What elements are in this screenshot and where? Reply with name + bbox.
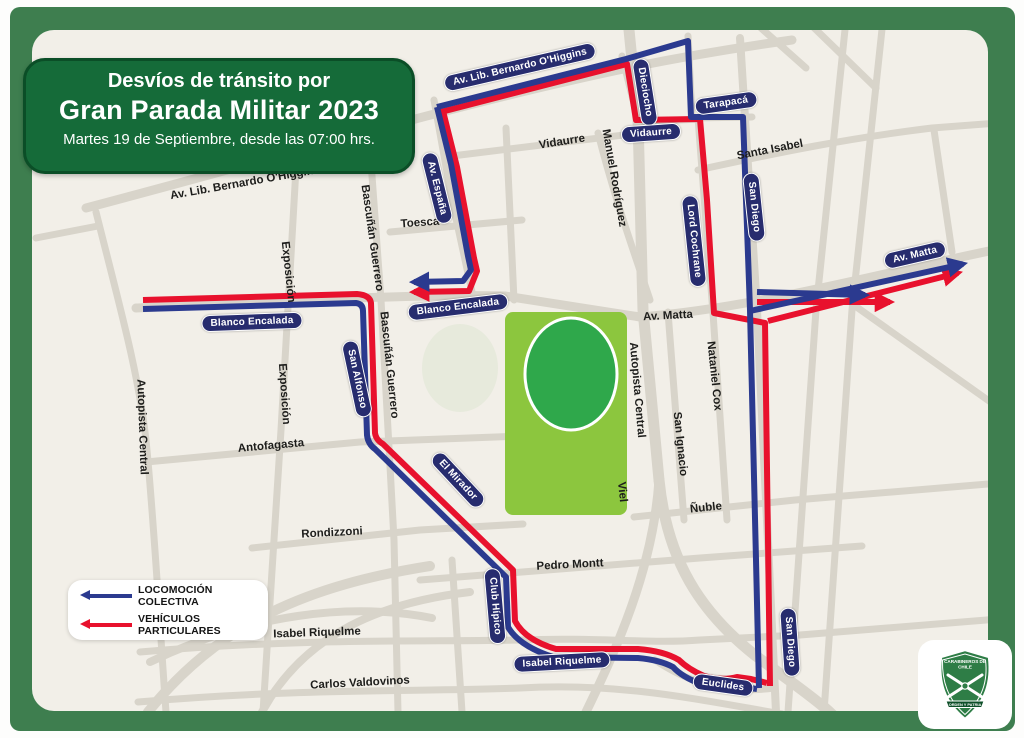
street-name-viel: Viel	[615, 481, 629, 502]
legend-item-locomocion: LOCOMOCIÓN COLECTIVA	[80, 584, 268, 608]
infographic-page: Av. Lib. Bernardo O'HigginsExposiciónBas…	[0, 0, 1024, 738]
street-name-autopista-central: Autopista Central	[134, 379, 149, 475]
street-name-bascunan-guerrero: Bascuñán Guerrero	[377, 311, 400, 419]
street-pill-dieciocho: Dieciocho	[631, 57, 658, 126]
red-left-arrow-icon	[80, 620, 132, 629]
street-name-santa-isabel: Santa Isabel	[736, 138, 804, 163]
street-name-san-ignacio: San Ignacio	[671, 411, 690, 476]
street-pill-isabel-riquelme: Isabel Riquelme	[513, 651, 611, 673]
street-pill-club-hipico: Club Hípico	[483, 568, 507, 645]
street-name-isabel-riquelme: Isabel Riquelme	[273, 625, 361, 640]
svg-text:CHILE: CHILE	[958, 664, 972, 669]
street-name-exposicion: Exposición	[276, 363, 292, 425]
street-pill-san-diego: San Diego	[742, 172, 766, 242]
street-name-toesca: Toesca	[400, 216, 440, 231]
carabineros-logo: CARABINEROS DE CHILE ORDEN Y PATRIA	[918, 640, 1012, 729]
street-pill-san-alfonso: San Alfonso	[341, 339, 374, 419]
street-name-vidaurre: Vidaurre	[538, 132, 586, 151]
svg-text:ORDEN Y PATRIA: ORDEN Y PATRIA	[949, 701, 982, 706]
street-pill-el-mirador: El Mirador	[428, 449, 487, 511]
street-pill-blanco-encalada: Blanco Encalada	[407, 292, 509, 321]
svg-text:CARABINEROS DE: CARABINEROS DE	[944, 659, 986, 664]
street-name-antofagasta: Antofagasta	[237, 437, 304, 455]
legend: LOCOMOCIÓN COLECTIVA VEHÍCULOS PARTICULA…	[68, 580, 268, 640]
street-name-autopista-central: Autopista Central	[627, 342, 647, 439]
street-pill-blanco-encalada: Blanco Encalada	[201, 312, 303, 333]
title-line-3: Martes 19 de Septiembre, desde las 07:00…	[26, 131, 412, 148]
street-pill-euclides: Euclides	[692, 672, 755, 697]
street-name-pedro-montt: Pedro Montt	[536, 557, 604, 572]
street-pill-av-matta: Av. Matta	[882, 240, 947, 271]
street-name-av-matta: Av. Matta	[643, 309, 693, 324]
street-pill-tarapaca: Tarapacá	[694, 90, 759, 116]
street-name-nataniel-cox: Nataniel Cox	[704, 341, 723, 412]
shield-icon: CARABINEROS DE CHILE ORDEN Y PATRIA	[933, 648, 997, 722]
title-card: Desvíos de tránsito por Gran Parada Mili…	[23, 58, 415, 174]
street-pill-lord-cochrane: Lord Cochrane	[681, 195, 707, 288]
title-line-1: Desvíos de tránsito por	[26, 70, 412, 93]
street-name-bascunan-guerrero: Bascuñán Guerrero	[359, 184, 386, 292]
legend-item-particulares: VEHÍCULOS PARTICULARES	[80, 613, 268, 637]
street-name-rondizzoni: Rondizzoni	[301, 525, 363, 540]
blue-left-arrow-icon	[80, 591, 132, 600]
street-name-nuble: Ñuble	[689, 500, 722, 515]
street-name-carlos-valdovinos: Carlos Valdovinos	[310, 674, 410, 691]
legend-label: LOCOMOCIÓN COLECTIVA	[138, 584, 268, 608]
street-name-manuel-rodriguez: Manuel Rodríguez	[599, 128, 628, 228]
street-pill-vidaurre: Vidaurre	[620, 122, 681, 143]
title-line-2: Gran Parada Militar 2023	[26, 95, 412, 126]
street-pill-av-lib-bernardo-o-higgins: Av. Lib. Bernardo O'Higgins	[442, 41, 597, 92]
street-name-exposicion: Exposición	[279, 241, 297, 303]
legend-label: VEHÍCULOS PARTICULARES	[138, 613, 268, 637]
street-pill-av-espana: Av. España	[420, 151, 454, 226]
street-pill-san-diego: San Diego	[779, 607, 801, 677]
